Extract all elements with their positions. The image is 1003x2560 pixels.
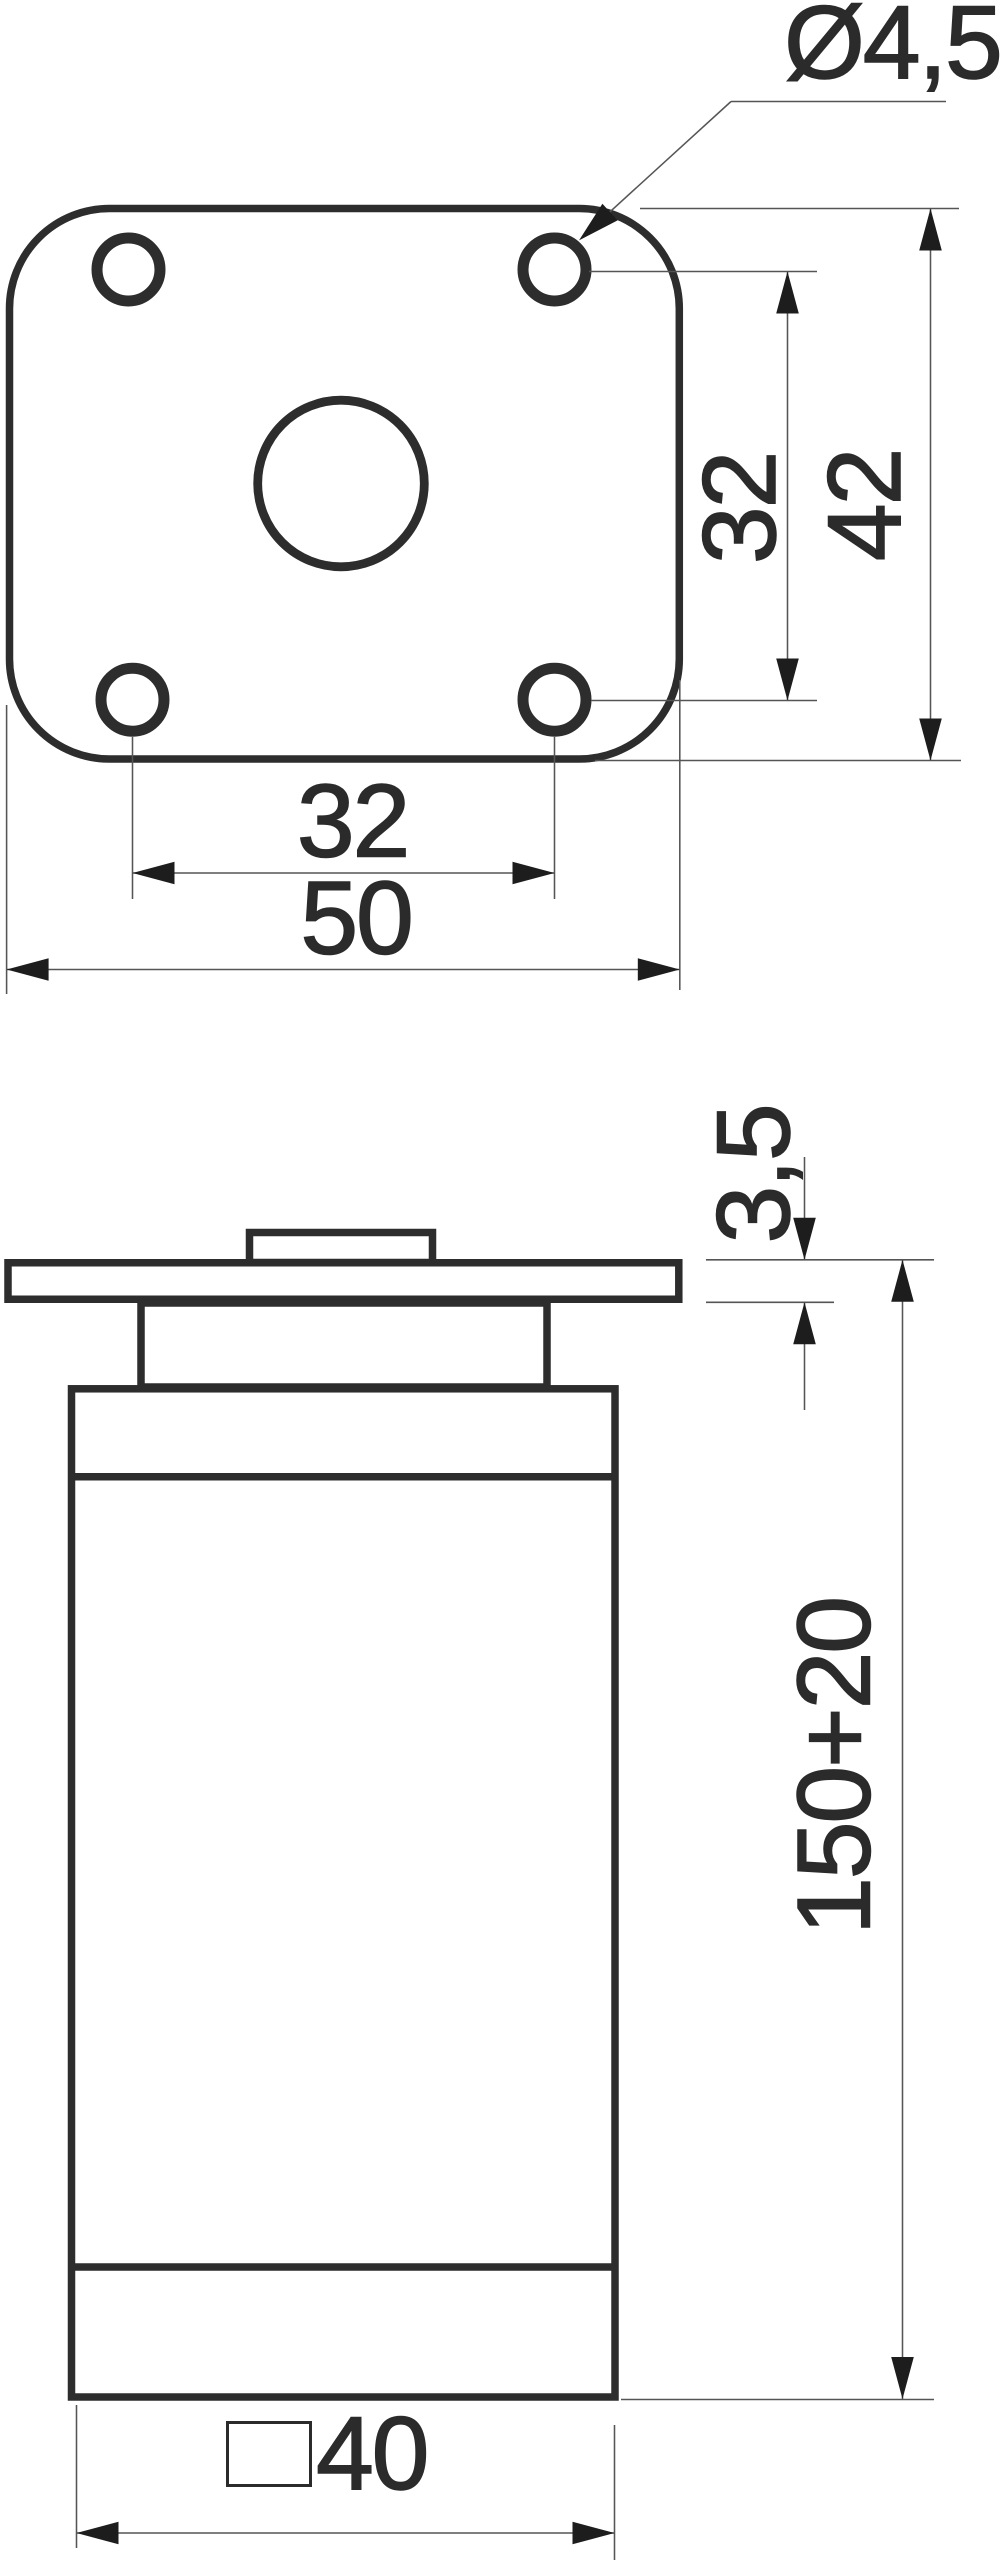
svg-text:3,5: 3,5 (696, 1106, 812, 1244)
svg-text:32: 32 (682, 453, 798, 564)
svg-text:50: 50 (300, 861, 411, 977)
svg-text:150+20: 150+20 (777, 1598, 893, 1935)
svg-text:Ø4,5: Ø4,5 (784, 0, 1001, 101)
svg-text:40: 40 (316, 2396, 427, 2512)
svg-text:42: 42 (807, 450, 923, 561)
